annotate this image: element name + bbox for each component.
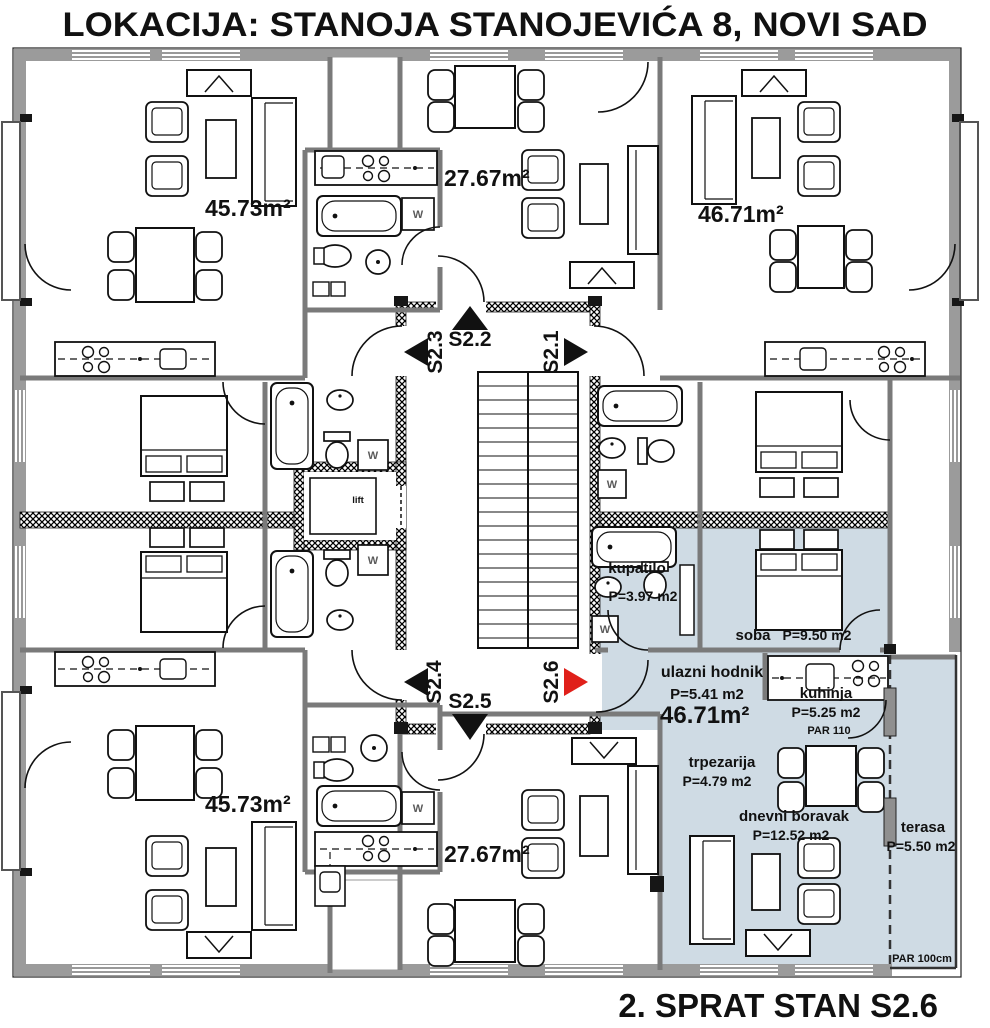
room-terasa: terasa	[901, 819, 946, 836]
coffee-table	[752, 118, 780, 178]
sink	[327, 610, 353, 630]
sofa	[628, 766, 658, 874]
dining-table	[136, 228, 194, 302]
room-terasa-area: P=5.50 m2	[887, 838, 956, 854]
apartment-top-right: 46.71m²	[692, 70, 925, 376]
toilet	[321, 759, 353, 781]
room-trpezarija-area: P=4.79 m2	[683, 773, 752, 789]
stair-label-s26: S2.6	[540, 660, 563, 703]
bathtub	[598, 386, 682, 426]
svg-text:W: W	[607, 479, 618, 491]
bathtub	[271, 383, 313, 469]
svg-text:W: W	[413, 803, 424, 815]
sink	[327, 390, 353, 410]
stair-label-s21: S2.1	[540, 330, 563, 374]
stair-label-s22: S2.2	[448, 328, 491, 351]
dining-table	[806, 746, 856, 806]
bed	[756, 392, 842, 472]
bathtub	[317, 786, 401, 826]
kitchen-counter	[55, 342, 215, 376]
toilet	[324, 432, 350, 468]
stair-label-s24: S2.4	[423, 660, 446, 704]
floor-plan: LOKACIJA: STANOJA STANOJEVIĆA 8, NOVI SA…	[0, 0, 990, 1028]
dining-table	[136, 726, 194, 800]
room-kuhinja-area: P=5.25 m2	[792, 704, 861, 720]
kitchen-counter	[765, 342, 925, 376]
room-kuhinja: kuhinja	[800, 685, 853, 702]
svg-text:W: W	[368, 555, 379, 567]
coffee-table	[206, 120, 236, 178]
armchair	[798, 102, 840, 142]
arrow-right-icon-red	[564, 668, 588, 696]
dining-table	[455, 900, 515, 962]
sink	[599, 438, 625, 458]
cabinet	[680, 565, 694, 635]
unit-total-area: 46.71m²	[660, 702, 749, 729]
room-hodnik: ulazni hodnik	[661, 664, 763, 681]
sofa	[690, 836, 734, 944]
area-label: 45.73m²	[205, 195, 291, 221]
armchair	[146, 836, 188, 876]
coffee-table	[580, 796, 608, 856]
sofa	[692, 96, 736, 204]
stair-label-s23: S2.3	[424, 330, 447, 373]
sofa	[628, 146, 658, 254]
arrow-right-icon	[564, 338, 588, 366]
coffee-table	[580, 164, 608, 224]
sofa	[252, 822, 296, 930]
apartment-top-left: 45.73m²	[55, 70, 296, 376]
dining-table	[455, 66, 515, 128]
room-dnevni: dnevni boravak	[739, 808, 850, 825]
tv	[187, 932, 251, 958]
tv	[572, 738, 636, 764]
armchair	[798, 838, 840, 878]
armchair	[798, 884, 840, 924]
staircase	[478, 372, 578, 648]
room-kupatilo-area: P=3.97 m2	[609, 588, 678, 604]
tv	[742, 70, 806, 96]
kitchen-counter	[55, 652, 215, 686]
toilet	[638, 438, 674, 464]
svg-text:W: W	[368, 450, 379, 462]
armchair	[522, 198, 564, 238]
tv	[746, 930, 810, 956]
room-kupatilo: kupatilo	[608, 560, 666, 577]
bed	[141, 552, 227, 632]
parapet-110: PAR 110	[807, 725, 850, 737]
toilet	[324, 550, 350, 586]
armchair	[146, 156, 188, 196]
lift-label: lift	[352, 495, 364, 506]
armchair	[522, 790, 564, 830]
area-label: 46.71m²	[698, 201, 784, 227]
apartment-bottom-left: 45.73m²	[55, 652, 296, 958]
coffee-table	[752, 854, 780, 910]
bathtub	[271, 551, 313, 637]
tv	[187, 70, 251, 96]
room-dnevni-area: P=12.52 m2	[753, 827, 830, 843]
room-hodnik-area: P=5.41 m2	[670, 686, 744, 703]
lift: lift	[294, 462, 406, 550]
stair-label-s25: S2.5	[448, 690, 492, 713]
bathtub	[317, 196, 401, 236]
sofa	[252, 98, 296, 206]
room-trpezarija: trpezarija	[689, 754, 756, 771]
armchair	[798, 156, 840, 196]
parapet-100: PAR 100cm	[892, 953, 952, 965]
area-label: 27.67m²	[444, 165, 530, 191]
svg-text:W: W	[413, 209, 424, 221]
armchair	[146, 102, 188, 142]
bathroom-kitchen-block	[313, 151, 437, 296]
floor-caption: 2. SPRAT STAN S2.6	[618, 987, 938, 1024]
svg-text:W: W	[600, 624, 611, 636]
room-soba-area: P=9.50 m2	[783, 627, 852, 643]
room-soba: soba	[735, 627, 771, 644]
page-title: LOKACIJA: STANOJA STANOJEVIĆA 8, NOVI SA…	[63, 6, 928, 44]
bed	[141, 396, 227, 476]
armchair	[146, 890, 188, 930]
tv	[570, 262, 634, 288]
area-label: 27.67m²	[444, 841, 530, 867]
bed	[756, 550, 842, 630]
area-label: 45.73m²	[205, 791, 291, 817]
coffee-table	[206, 848, 236, 906]
bedroom-right-top	[756, 392, 842, 497]
dining-table	[798, 226, 844, 288]
